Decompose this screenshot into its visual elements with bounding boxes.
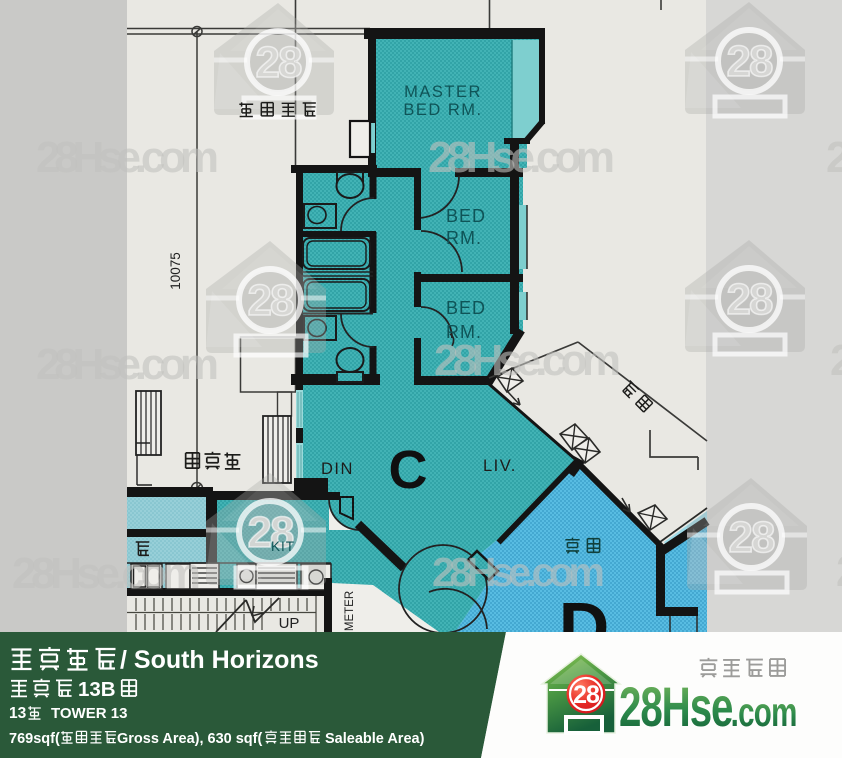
svg-text:RM.: RM. [446, 322, 482, 342]
svg-text:13B: 13B [78, 678, 116, 701]
svg-text:TOWER 13: TOWER 13 [51, 705, 127, 722]
svg-text:BED RM.: BED RM. [403, 101, 482, 119]
svg-text:28Hse.com: 28Hse.com [830, 336, 842, 385]
svg-text:RM.: RM. [446, 228, 482, 248]
svg-text:28Hse.com: 28Hse.com [36, 133, 218, 182]
svg-text:BED: BED [446, 298, 486, 318]
svg-text:KIT: KIT [271, 539, 295, 554]
svg-text:28Hse.com: 28Hse.com [428, 133, 614, 182]
svg-text:28Hse: 28Hse [619, 677, 733, 739]
svg-text:769sqf(: 769sqf( [9, 731, 60, 747]
svg-text:10075: 10075 [168, 252, 183, 290]
svg-text:Gross Area), 630 sqf(: Gross Area), 630 sqf( [117, 731, 262, 747]
svg-text:LIV.: LIV. [483, 457, 517, 475]
svg-text:28Hse.com: 28Hse.com [434, 336, 620, 385]
svg-text:28Hse.com: 28Hse.com [36, 340, 218, 389]
svg-text:.com: .com [731, 689, 797, 735]
svg-text:Saleable Area): Saleable Area) [325, 731, 425, 747]
svg-text:C: C [389, 440, 428, 500]
svg-text:UP: UP [279, 615, 300, 632]
svg-text:BED: BED [446, 206, 486, 226]
svg-text:28Hse.com: 28Hse.com [826, 133, 842, 182]
svg-text:DIN: DIN [321, 460, 354, 478]
svg-text:/ South Horizons: / South Horizons [120, 646, 319, 674]
svg-text:13: 13 [9, 705, 27, 722]
svg-text:28: 28 [573, 681, 600, 709]
svg-text:28Hse.com: 28Hse.com [836, 547, 842, 596]
svg-text:28Hse.com: 28Hse.com [12, 549, 200, 598]
svg-text:METER: METER [344, 591, 356, 631]
svg-text:MASTER: MASTER [404, 83, 482, 101]
